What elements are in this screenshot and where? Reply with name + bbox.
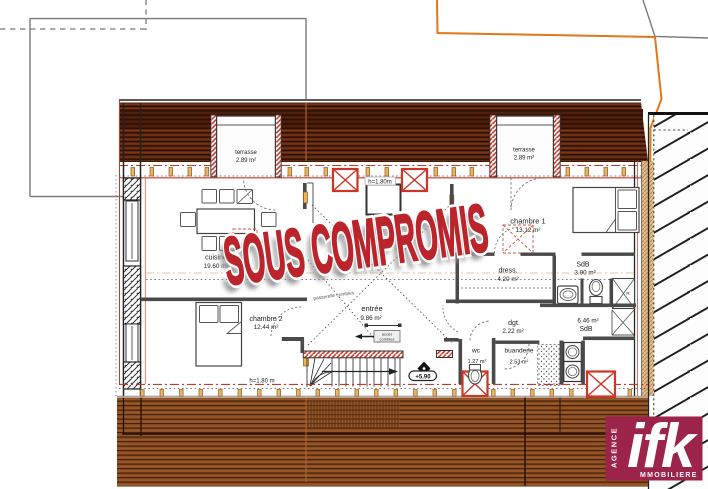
svg-text:AGENCE: AGENCE xyxy=(610,427,619,468)
svg-text:MMOBILIERE: MMOBILIERE xyxy=(640,472,698,479)
svg-text:ifk: ifk xyxy=(627,412,699,481)
